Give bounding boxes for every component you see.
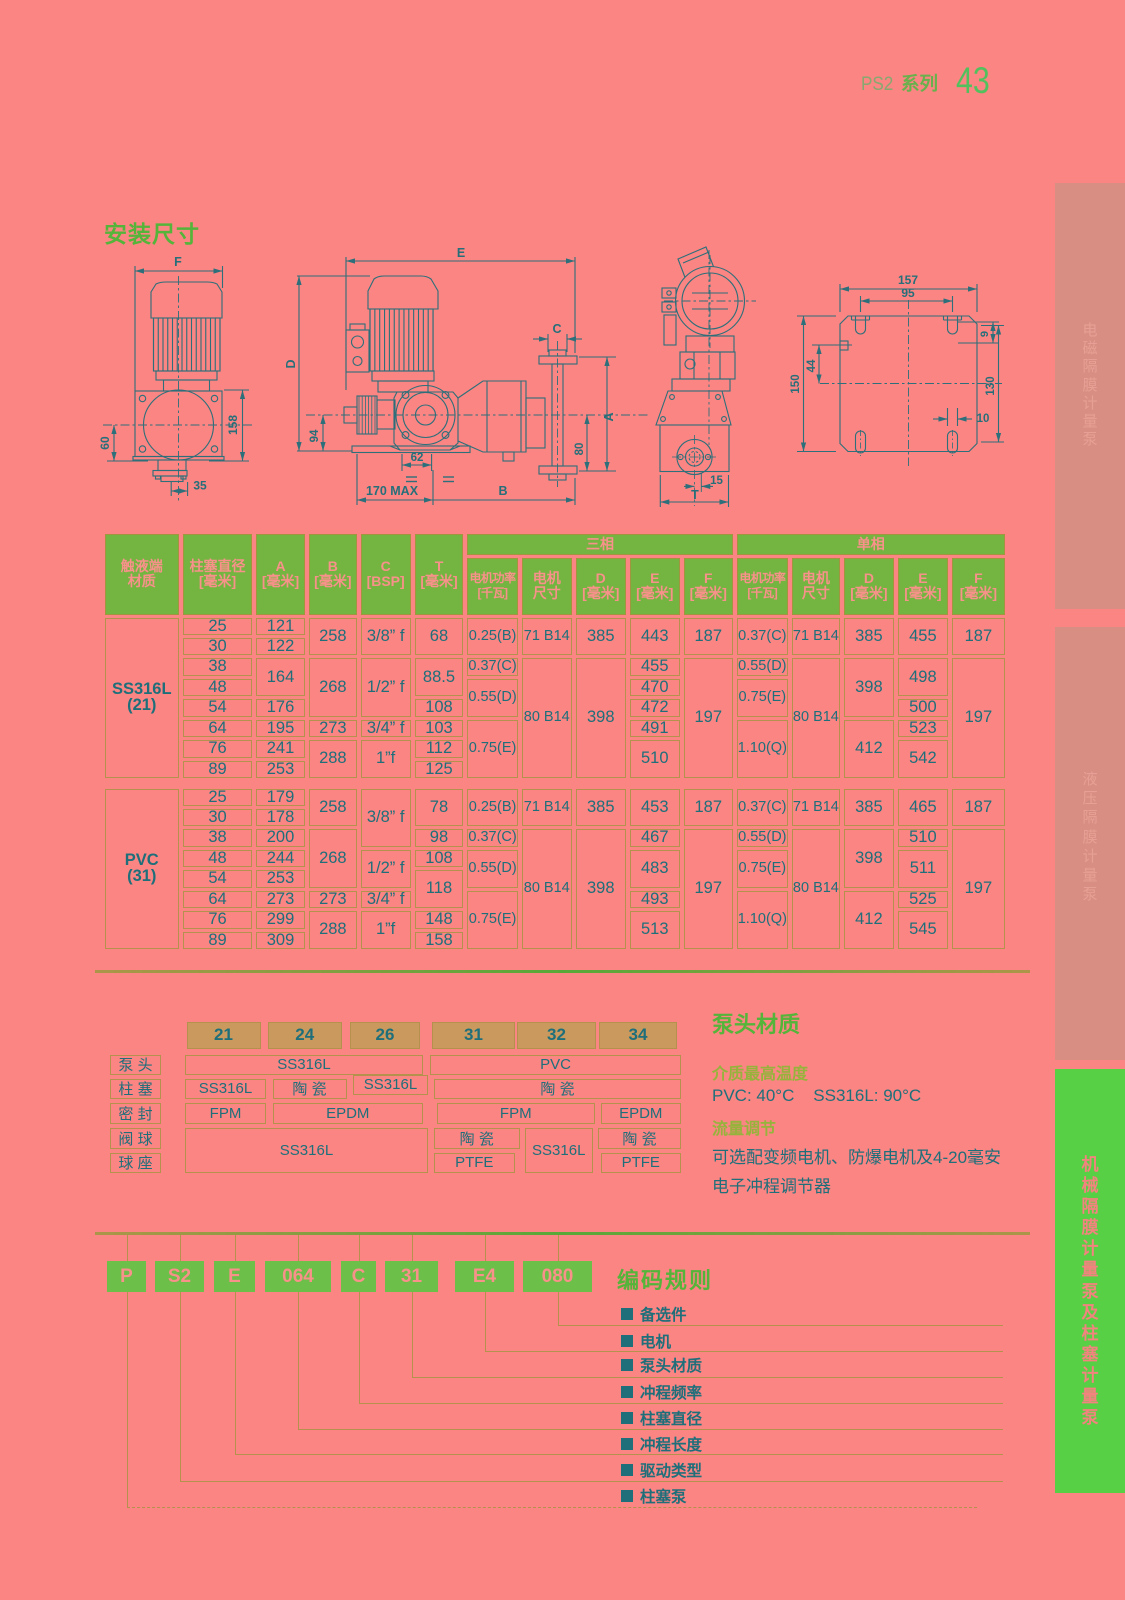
svg-text:15: 15: [710, 475, 723, 487]
svg-text:C: C: [552, 322, 561, 336]
svg-text:T: T: [691, 488, 699, 502]
svg-text:D: D: [284, 359, 298, 368]
svg-text:130: 130: [985, 376, 997, 395]
svg-text:158: 158: [226, 415, 240, 435]
svg-text:157: 157: [898, 273, 918, 287]
svg-text:62: 62: [411, 452, 424, 464]
svg-text:35: 35: [193, 479, 207, 493]
svg-text:150: 150: [790, 374, 802, 393]
svg-text:170 MAX: 170 MAX: [366, 484, 419, 498]
svg-text:44: 44: [806, 359, 818, 372]
svg-text:9: 9: [979, 331, 991, 337]
svg-text:F: F: [174, 255, 182, 269]
svg-text:B: B: [498, 484, 507, 498]
svg-text:10: 10: [977, 413, 990, 425]
svg-text:80: 80: [574, 443, 586, 456]
svg-text:94: 94: [309, 429, 321, 442]
svg-text:A: A: [602, 412, 616, 421]
svg-text:95: 95: [901, 286, 915, 300]
svg-text:60: 60: [98, 436, 112, 450]
svg-text:E: E: [457, 246, 465, 260]
